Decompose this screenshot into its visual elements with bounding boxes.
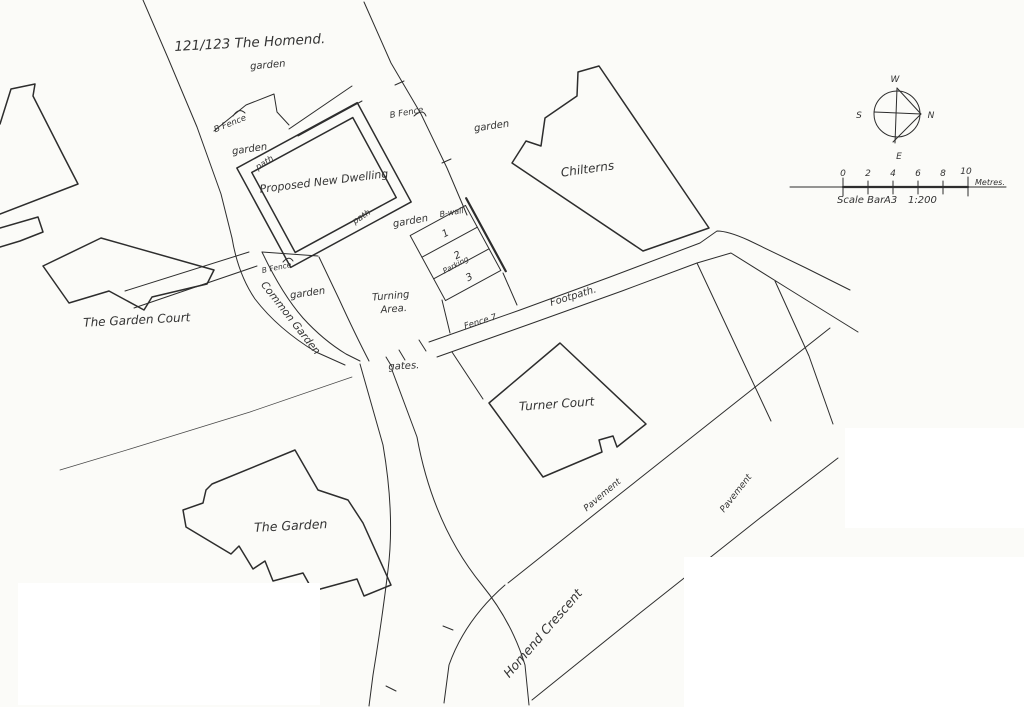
dwelling-label-group: Proposed New Dwelling (259, 167, 389, 196)
wall-to-footpath-link (503, 273, 517, 305)
scale-unit-label: Metres. (975, 178, 1005, 187)
compass-south-label: S (856, 111, 862, 121)
site-plan-page: 121/123 The Homend. garden B Fence garde… (0, 0, 1024, 707)
homend-crescent-label: Homend Crescent (500, 585, 586, 680)
parking-bay-number: 3 (464, 271, 475, 284)
blank-patch-bottom-right (684, 557, 1024, 707)
garden-court-building-outline (43, 238, 214, 310)
scale-sheet-caption: A3 (883, 195, 897, 206)
b-fence-label: B Fence (213, 113, 248, 135)
turner-plot-west-link (452, 352, 483, 399)
compass-axis-horizontal (874, 112, 921, 114)
blank-patch-bottom-left (18, 583, 320, 705)
pavement-label: Pavement (582, 477, 624, 514)
scale-bar-caption: Scale Bar (837, 195, 885, 206)
access-road-east-sweep (392, 370, 529, 705)
compass-rose (874, 88, 921, 143)
garden-label: garden (289, 286, 326, 302)
turning-area-west-boundary (319, 257, 369, 361)
garden-label: garden (250, 58, 286, 72)
scale-tick-label: 0 (840, 169, 846, 179)
scale-tick-label: 10 (960, 167, 972, 177)
curb-tick (386, 686, 396, 691)
plot-south-boundary (262, 252, 318, 256)
garden-court-wall-2 (134, 266, 257, 308)
turning-area-label-line1: Turning (372, 289, 410, 303)
turning-area-label-line2: Area. (379, 303, 407, 316)
curb-tick (443, 626, 453, 630)
scale-tick-label: 2 (865, 169, 871, 179)
lane-west-edge (232, 238, 345, 365)
scale-tick-label: 4 (890, 169, 896, 179)
boundary-wall (466, 198, 506, 271)
gate-tick (419, 340, 426, 351)
turner-court-label: Turner Court (519, 394, 596, 413)
garden-label: garden (392, 213, 429, 230)
site-title-label: 121/123 The Homend. (174, 31, 326, 55)
compass-axis-vertical (895, 88, 897, 143)
parking-to-footpath-link (442, 300, 450, 333)
left-building-notch (0, 217, 43, 247)
scale-tick-label: 8 (940, 169, 946, 179)
gate-tick (399, 350, 405, 360)
junction-inner-curb (444, 585, 505, 703)
pavement-label: Pavement (719, 472, 755, 514)
fence-7-label: Fence 7 (463, 312, 499, 332)
plot-boundary-east-2 (775, 281, 833, 424)
gates-label: gates. (388, 360, 419, 373)
compass-west-label: W (891, 75, 901, 85)
left-building-top-outline (0, 84, 78, 214)
b-fence-label: B Fence (261, 260, 293, 275)
blank-patch-right (845, 428, 1024, 528)
scale-tick-label: 6 (915, 169, 921, 179)
chilterns-label: Chilterns (560, 158, 615, 179)
plot-boundary-east-1 (697, 263, 771, 421)
garden-plot-boundary (60, 377, 352, 470)
proposed-dwelling-label: Proposed New Dwelling (259, 167, 389, 196)
compass-north-label: N (928, 111, 935, 121)
footpath-label: Footpath. (549, 284, 598, 309)
the-garden-label: The Garden (254, 516, 328, 535)
scale-bar (790, 177, 1006, 196)
crescent-north-edge (508, 328, 830, 583)
garden-court-wall-1 (125, 252, 249, 291)
parking-bay-number: 1 (440, 228, 451, 241)
garden-label: garden (231, 142, 268, 158)
access-road-west-edge (360, 364, 391, 706)
parking-divider (422, 227, 477, 257)
compass-east-label: E (896, 152, 902, 162)
b-wall-label: B-wall (439, 206, 465, 219)
the-garden-court-label: The Garden Court (83, 310, 192, 330)
b-fence-label: B Fence (389, 105, 424, 121)
scale-ratio-caption: 1:200 (908, 195, 937, 206)
garden-label: garden (473, 119, 510, 135)
site-plan-drawing: 121/123 The Homend. garden B Fence garde… (0, 0, 1024, 707)
